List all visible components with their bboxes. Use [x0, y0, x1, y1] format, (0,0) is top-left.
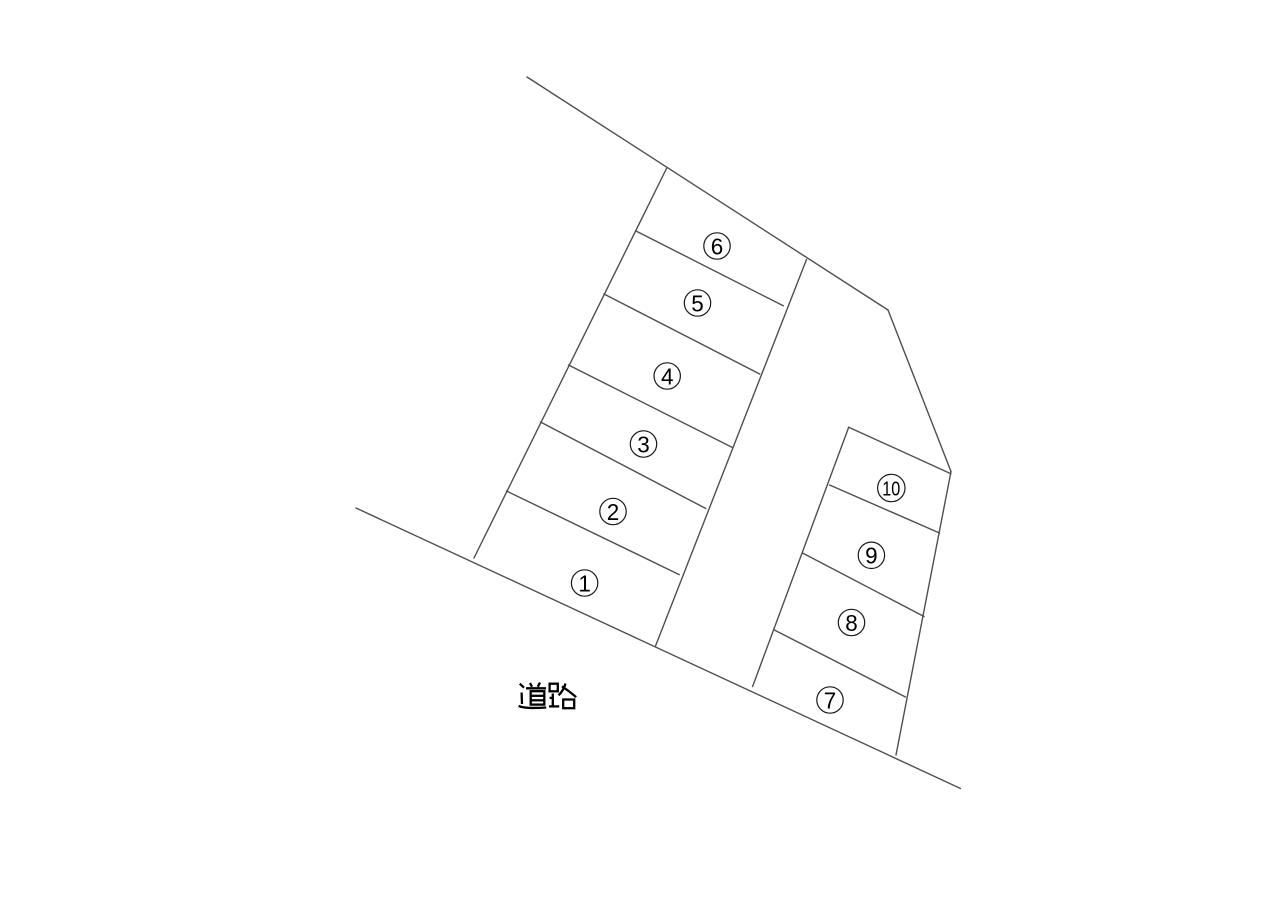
svg-text:8: 8: [845, 610, 858, 636]
svg-text:3: 3: [637, 431, 650, 457]
svg-text:5: 5: [691, 290, 704, 316]
svg-text:9: 9: [865, 543, 878, 569]
svg-text:7: 7: [824, 687, 837, 713]
svg-text:6: 6: [711, 233, 724, 259]
svg-text:1: 1: [578, 570, 591, 596]
svg-text:4: 4: [661, 363, 674, 389]
svg-text:10: 10: [882, 478, 900, 500]
svg-text:2: 2: [607, 499, 620, 525]
